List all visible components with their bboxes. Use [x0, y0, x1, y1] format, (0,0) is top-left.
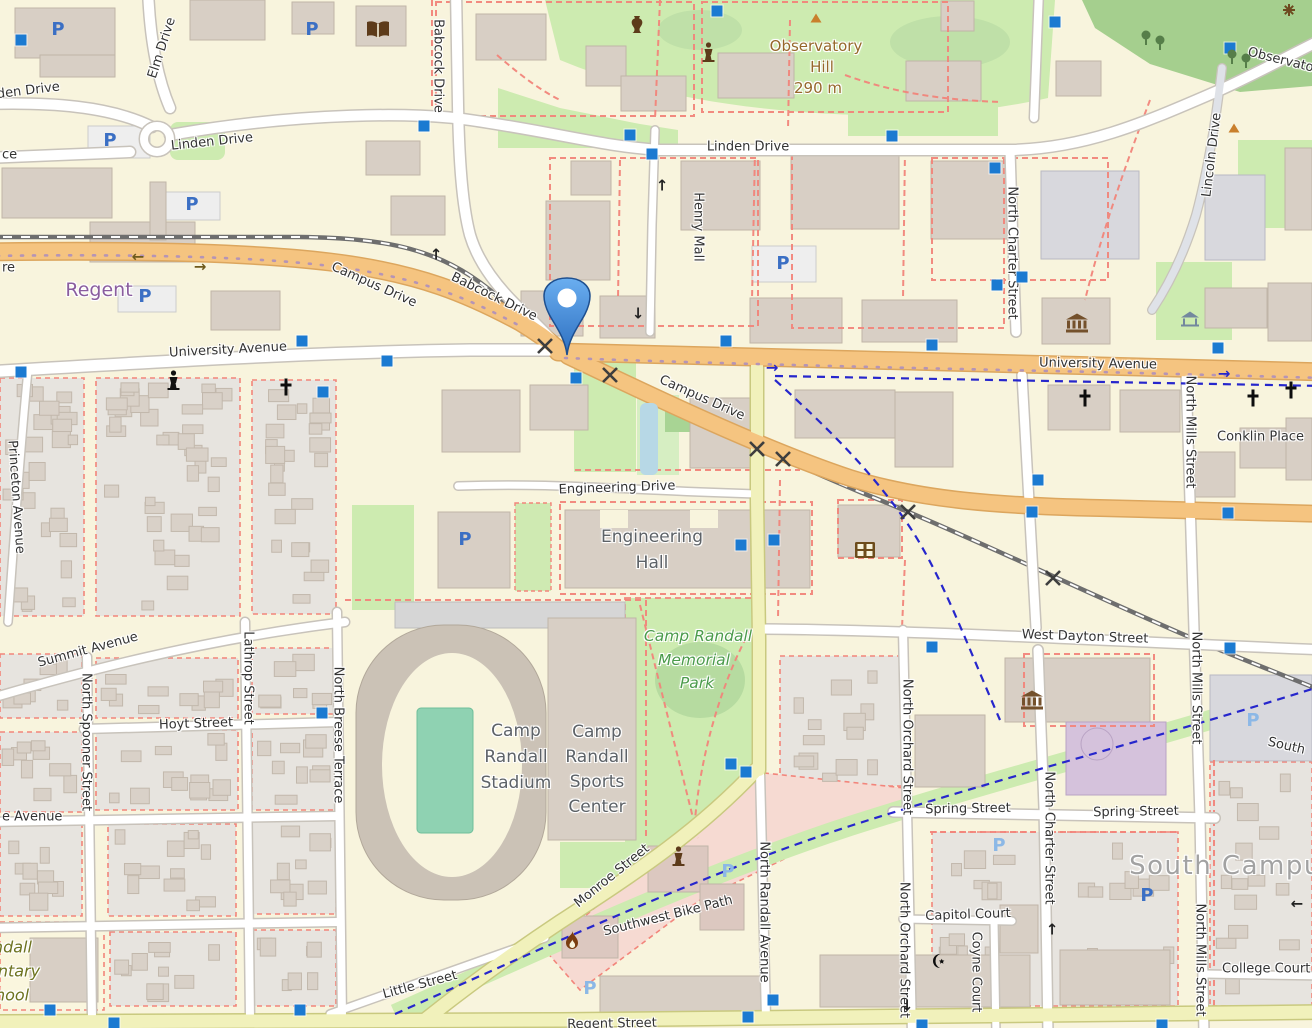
- location-marker[interactable]: [542, 277, 592, 357]
- pin-icon: [542, 277, 592, 357]
- map-canvas[interactable]: Elm DriveLinden DriveLinden DriveLinden …: [0, 0, 1312, 1028]
- pond: [640, 403, 658, 475]
- map-tiles: [0, 0, 1312, 1028]
